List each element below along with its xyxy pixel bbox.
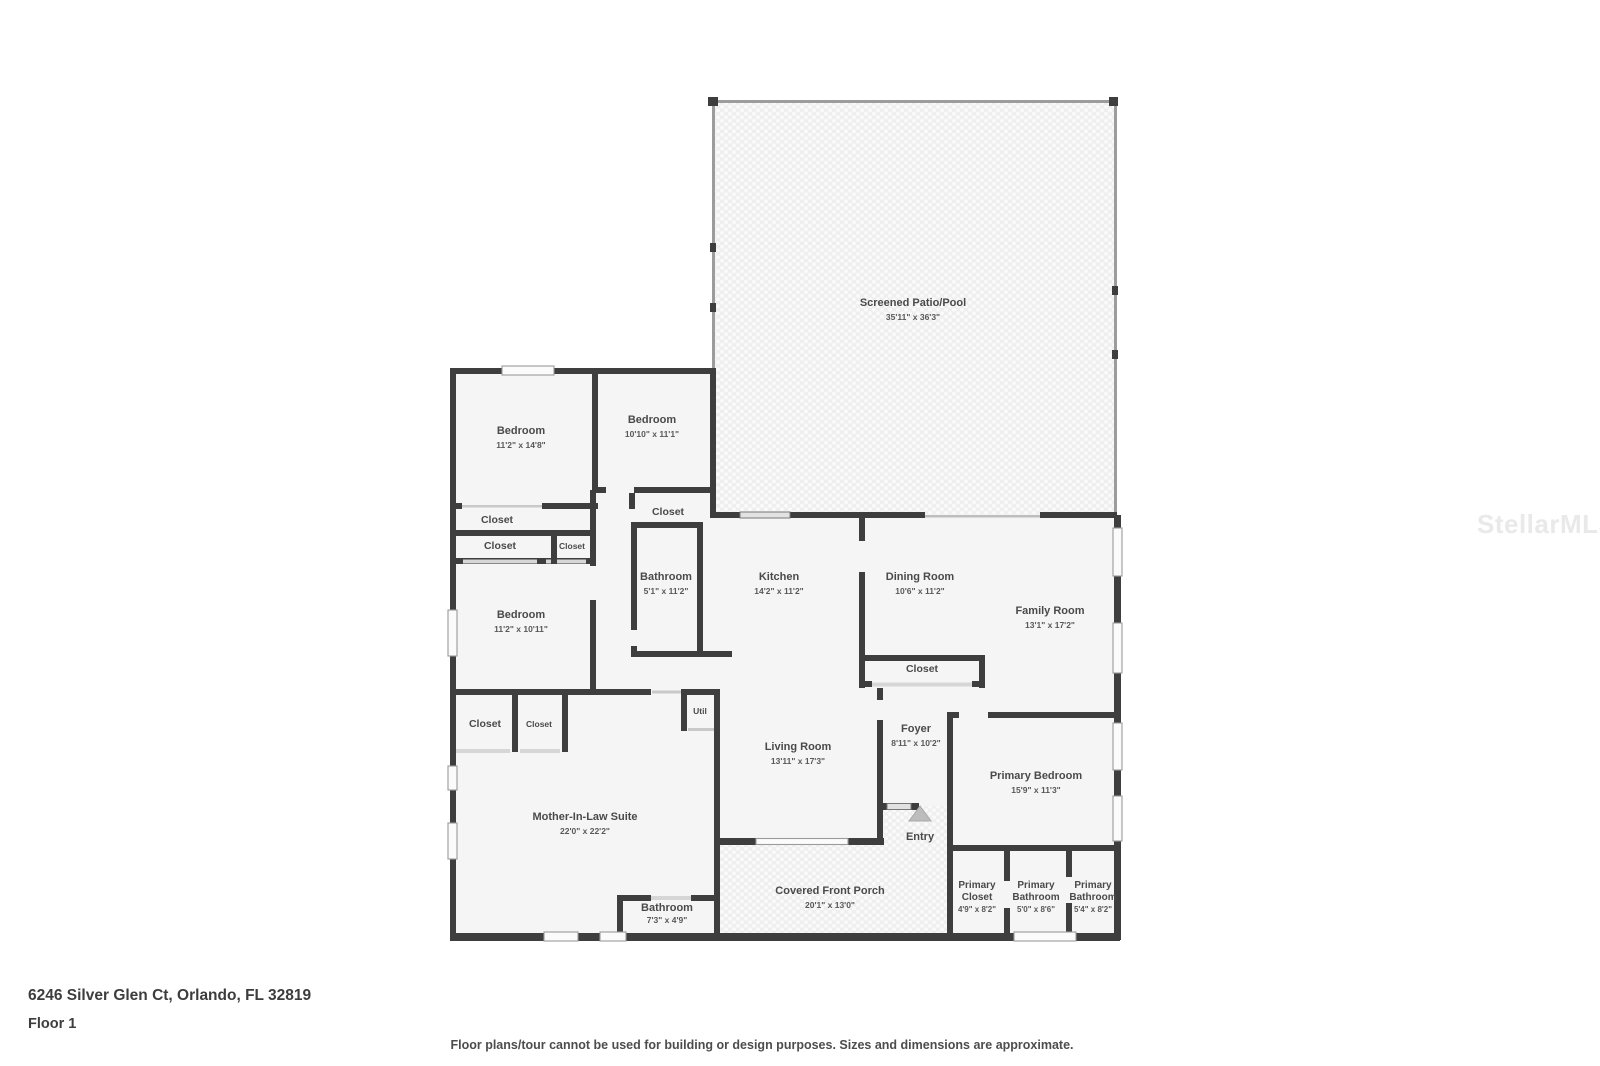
room-label-mother-in-law-suite: Mother-In-Law Suite [532, 811, 637, 823]
room-dims-family-room: 13'1" x 17'2" [1025, 620, 1075, 630]
front-door [887, 804, 911, 810]
room-label-hall-bathroom: Bathroom [640, 571, 692, 583]
floor-plan-page: Screened Patio/Pool 35'11" x 36'3" Bedro… [0, 0, 1600, 1066]
room-label-bedroom-1: Bedroom [497, 425, 546, 437]
room-label-bedroom-2: Bedroom [628, 414, 677, 426]
room-label-dining-room: Dining Room [886, 571, 955, 583]
floor-label: Floor 1 [28, 1016, 76, 1032]
room-dims-dining-room: 10'6" x 11'2" [895, 586, 944, 596]
room-label-covered-front-porch: Covered Front Porch [775, 885, 885, 897]
patio-slider-door [740, 512, 790, 518]
room-dims-covered-front-porch: 20'1" x 13'0" [805, 900, 855, 910]
stellar-mls-watermark: StellarMLS [1477, 509, 1600, 539]
room-label-primary-closet-1: Primary [958, 880, 996, 891]
room-dims-foyer: 8'11" x 10'2" [891, 738, 940, 748]
disclaimer-text: Floor plans/tour cannot be used for buil… [450, 1038, 1073, 1052]
room-label-primary-bathroom-1b: Bathroom [1012, 892, 1059, 903]
room-dims-mother-in-law-suite: 22'0" x 22'2" [560, 826, 610, 836]
room-dims-primary-bathroom-1: 5'0" x 8'6" [1017, 905, 1055, 914]
room-dims-mil-bathroom: 7'3" x 4'9" [647, 915, 687, 925]
room-dims-primary-closet: 4'9" x 8'2" [958, 905, 996, 914]
room-label-family-room: Family Room [1015, 605, 1084, 617]
room-dims-bedroom-2: 10'10" x 11'1" [625, 429, 679, 439]
room-dims-primary-bathroom-2: 5'4" x 8'2" [1074, 905, 1112, 914]
entry-label: Entry [906, 831, 935, 843]
room-label-primary-bathroom-2a: Primary [1074, 880, 1112, 891]
room-label-mil-bathroom: Bathroom [641, 902, 693, 914]
closet-label-6: Closet [469, 718, 502, 730]
closet-label-2: Closet [484, 540, 517, 552]
room-label-screened-patio-pool: Screened Patio/Pool [860, 297, 966, 309]
closet-label-5: Closet [906, 663, 939, 675]
address-text: 6246 Silver Glen Ct, Orlando, FL 32819 [28, 987, 312, 1004]
closet-label-7: Closet [526, 719, 552, 729]
room-label-primary-bathroom-2b: Bathroom [1069, 892, 1116, 903]
living-room-window [756, 839, 848, 845]
room-dims-hall-bathroom: 5'1" x 11'2" [644, 586, 689, 596]
room-dims-kitchen: 14'2" x 11'2" [754, 586, 803, 596]
closet-label-4: Closet [652, 506, 685, 518]
room-label-primary-closet-2: Closet [962, 892, 993, 903]
room-label-living-room: Living Room [765, 741, 832, 753]
room-dims-bedroom-3: 11'2" x 10'11" [494, 624, 548, 634]
closet-label-3: Closet [559, 541, 585, 551]
footer: 6246 Silver Glen Ct, Orlando, FL 32819 F… [28, 987, 1074, 1052]
room-dims-living-room: 13'11" x 17'3" [771, 756, 825, 766]
closet-label-1: Closet [481, 514, 514, 526]
floor-plan-svg: Screened Patio/Pool 35'11" x 36'3" Bedro… [0, 0, 1600, 1066]
room-label-kitchen: Kitchen [759, 571, 800, 583]
util-label: Util [693, 706, 707, 716]
room-label-bedroom-3: Bedroom [497, 609, 546, 621]
room-label-primary-bedroom: Primary Bedroom [990, 770, 1083, 782]
room-label-primary-bathroom-1a: Primary [1017, 880, 1055, 891]
room-dims-screened-patio-pool: 35'11" x 36'3" [886, 312, 940, 322]
room-label-foyer: Foyer [901, 723, 932, 735]
room-dims-primary-bedroom: 15'9" x 11'3" [1011, 785, 1060, 795]
room-dims-bedroom-1: 11'2" x 14'8" [496, 440, 545, 450]
